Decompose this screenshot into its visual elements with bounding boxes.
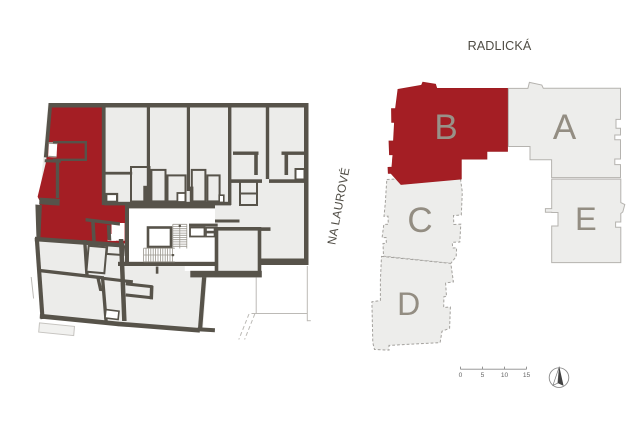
svg-text:B: B [434,108,457,147]
svg-text:RADLICKÁ: RADLICKÁ [468,38,532,53]
svg-text:E: E [575,201,597,237]
svg-text:0: 0 [459,372,463,379]
svg-text:D: D [397,286,420,322]
svg-text:5: 5 [481,372,485,379]
svg-text:10: 10 [501,372,509,379]
svg-text:C: C [407,201,432,240]
svg-text:A: A [553,108,577,147]
svg-text:15: 15 [523,372,531,379]
